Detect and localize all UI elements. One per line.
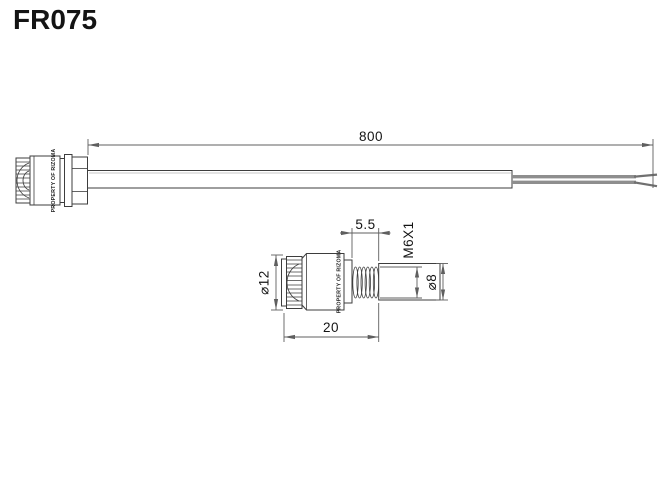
top-view-cable-sleeve — [88, 171, 513, 189]
top-view-engraving: PROPERTY OF RIZOMA — [51, 149, 57, 213]
dim-thread-length-label: 5.5 — [355, 217, 375, 232]
dim-sleeve-diameter-label: ⌀8 — [424, 274, 439, 291]
top-view-ring — [60, 159, 65, 203]
detail-thread — [353, 267, 379, 298]
dim-thread-length: 5.5 — [340, 217, 391, 261]
dim-lens-diameter-label: ⌀12 — [257, 270, 272, 295]
top-view-wires — [512, 175, 657, 187]
technical-drawing: FR075 PROPERTY OF RIZOMA — [0, 0, 672, 487]
detail-step-ring — [344, 260, 352, 303]
top-view-lens — [16, 158, 30, 203]
detail-engraving: PROPERTY OF RIZOMA — [337, 250, 343, 314]
dim-thread-spec-label: M6X1 — [401, 221, 416, 258]
technical-drawing-page: FR075 PROPERTY OF RIZOMA — [0, 0, 672, 487]
dim-body-length-label: 20 — [323, 320, 339, 335]
detail-lens — [282, 257, 303, 309]
detail-view: PROPERTY OF RIZOMA ⌀12 — [257, 217, 449, 342]
top-view-body: PROPERTY OF RIZOMA — [30, 149, 60, 213]
dim-lens-diameter: ⌀12 — [257, 255, 284, 310]
top-view-hex-nut — [72, 157, 88, 204]
top-view-flange — [65, 155, 73, 207]
detail-body: PROPERTY OF RIZOMA — [302, 250, 344, 314]
top-view: PROPERTY OF RIZOMA 800 — [16, 129, 657, 212]
page-title: FR075 — [13, 4, 97, 35]
dim-cable-length-label: 800 — [359, 129, 383, 144]
